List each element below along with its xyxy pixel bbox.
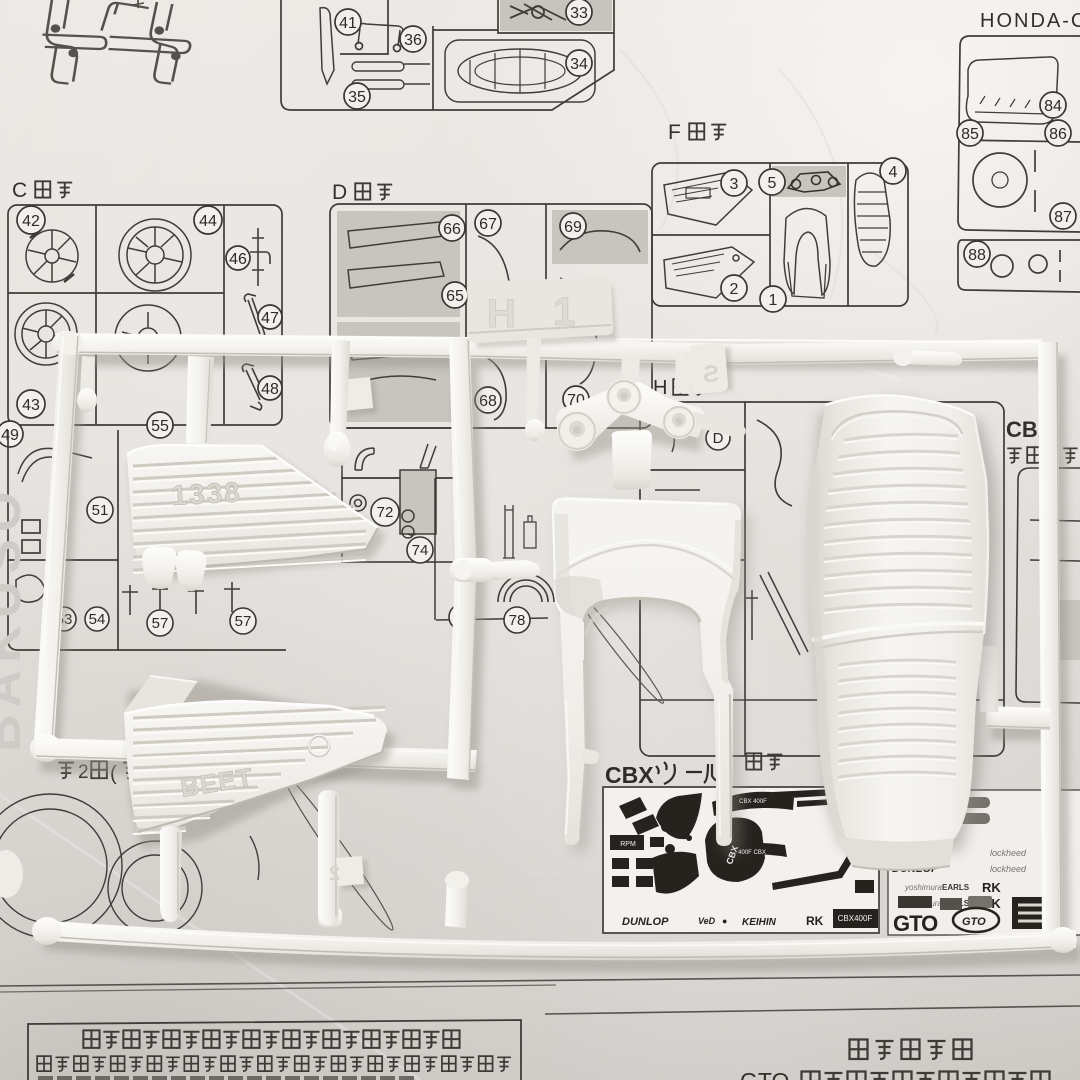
- svg-text:VeD: VeD: [698, 916, 716, 926]
- svg-text:RK: RK: [982, 880, 1001, 895]
- svg-text:EARLS: EARLS: [942, 883, 970, 892]
- svg-text:yoshimura: yoshimura: [904, 883, 942, 892]
- svg-text:54: 54: [89, 611, 106, 628]
- svg-text:49: 49: [1, 427, 19, 444]
- svg-text:34: 34: [570, 56, 588, 73]
- svg-text:H: H: [487, 292, 516, 336]
- svg-text:D: D: [332, 181, 347, 204]
- svg-text:46: 46: [229, 251, 247, 268]
- svg-text:F: F: [668, 121, 681, 144]
- svg-text:88: 88: [968, 247, 986, 264]
- svg-text:2: 2: [329, 863, 340, 885]
- svg-text:DUNLOP: DUNLOP: [622, 916, 669, 928]
- svg-text:66: 66: [443, 221, 461, 238]
- svg-text:55: 55: [151, 418, 169, 435]
- svg-text:●: ●: [722, 916, 727, 926]
- svg-text:lockheed: lockheed: [990, 864, 1027, 874]
- svg-text:48: 48: [261, 381, 279, 398]
- svg-text:CBX 400F: CBX 400F: [739, 799, 767, 805]
- svg-text:S: S: [703, 361, 719, 388]
- svg-text:1: 1: [769, 292, 778, 309]
- svg-text:CBX400F: CBX400F: [838, 914, 873, 923]
- svg-text:41: 41: [339, 15, 357, 32]
- svg-text:47: 47: [261, 310, 279, 327]
- svg-text:lockheed: lockheed: [990, 848, 1027, 858]
- svg-text:86: 86: [1049, 126, 1067, 143]
- svg-text:68: 68: [479, 393, 497, 410]
- svg-text:72: 72: [377, 504, 394, 521]
- svg-text:RK: RK: [806, 914, 824, 928]
- svg-text:78: 78: [509, 612, 526, 629]
- svg-text:GTO: GTO: [962, 916, 986, 928]
- svg-text:44: 44: [199, 213, 217, 230]
- svg-text:35: 35: [348, 89, 366, 106]
- svg-text:84: 84: [1044, 98, 1062, 115]
- svg-text:57: 57: [235, 613, 252, 630]
- svg-text:C: C: [12, 179, 27, 202]
- svg-text:43: 43: [22, 397, 40, 414]
- svg-text:GTO: GTO: [740, 1068, 789, 1080]
- svg-text:4: 4: [889, 164, 898, 181]
- svg-text:33: 33: [570, 5, 588, 22]
- svg-text:GTO: GTO: [893, 911, 938, 936]
- svg-text:67: 67: [479, 216, 497, 233]
- svg-text:51: 51: [92, 502, 109, 519]
- svg-text:85: 85: [961, 126, 979, 143]
- svg-text:74: 74: [412, 542, 429, 559]
- svg-text:5: 5: [768, 175, 777, 192]
- svg-text:CBX: CBX: [605, 762, 654, 788]
- svg-text:57: 57: [152, 615, 169, 632]
- svg-text:HONDA-C: HONDA-C: [980, 10, 1080, 32]
- svg-text:RPM: RPM: [620, 841, 636, 848]
- svg-text:400F CBX: 400F CBX: [738, 850, 766, 856]
- svg-text:87: 87: [1054, 209, 1072, 226]
- svg-text:BAKUSO: BAKUSO: [0, 485, 32, 752]
- svg-text:69: 69: [564, 219, 582, 236]
- svg-text:36: 36: [404, 32, 422, 49]
- svg-text:1338: 1338: [171, 476, 243, 511]
- svg-text:65: 65: [446, 288, 464, 305]
- svg-text:KEIHIN: KEIHIN: [742, 917, 777, 928]
- svg-text:3: 3: [730, 176, 739, 193]
- svg-text:1: 1: [553, 290, 575, 334]
- svg-text:2: 2: [730, 281, 739, 298]
- svg-text:42: 42: [22, 213, 40, 230]
